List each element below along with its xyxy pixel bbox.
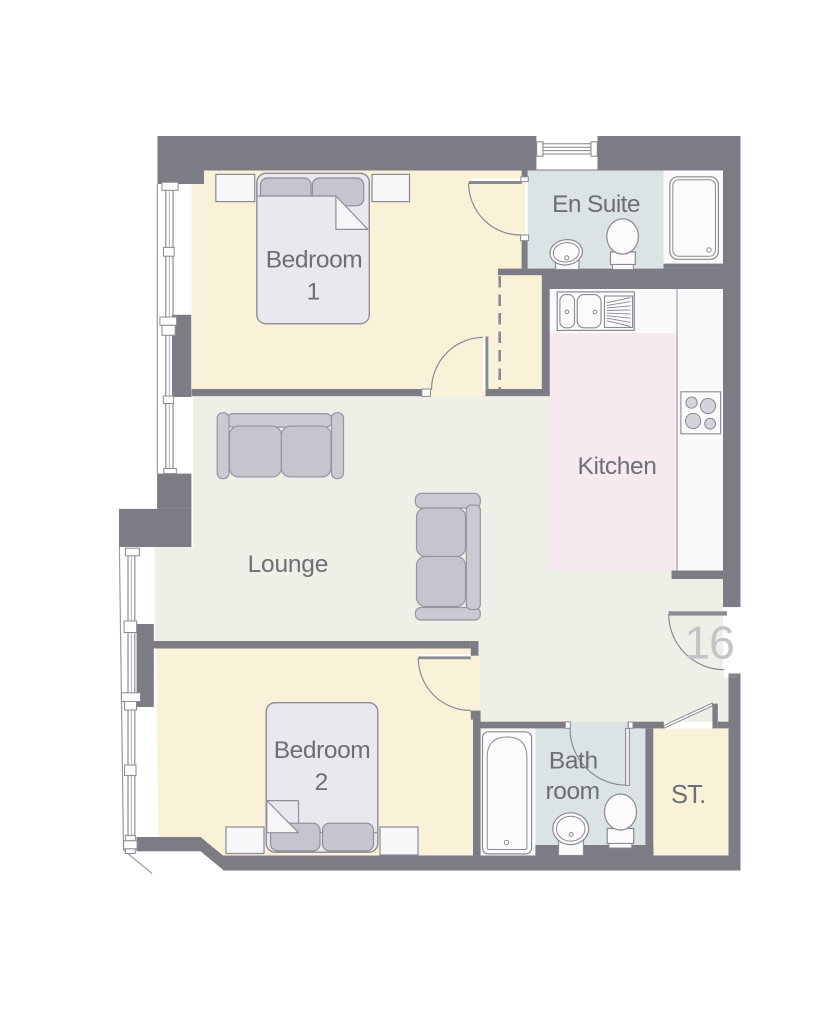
svg-text:Lounge: Lounge [248, 551, 329, 578]
svg-text:2: 2 [315, 769, 328, 796]
svg-text:Bedroom: Bedroom [266, 247, 363, 274]
svg-text:Bath: Bath [549, 748, 598, 775]
svg-text:1: 1 [307, 278, 320, 305]
svg-text:ST.: ST. [671, 781, 705, 809]
svg-text:16: 16 [684, 617, 733, 669]
svg-text:room: room [545, 778, 599, 805]
svg-text:En Suite: En Suite [552, 191, 640, 218]
svg-text:Kitchen: Kitchen [578, 453, 657, 480]
svg-text:Bedroom: Bedroom [274, 737, 371, 764]
